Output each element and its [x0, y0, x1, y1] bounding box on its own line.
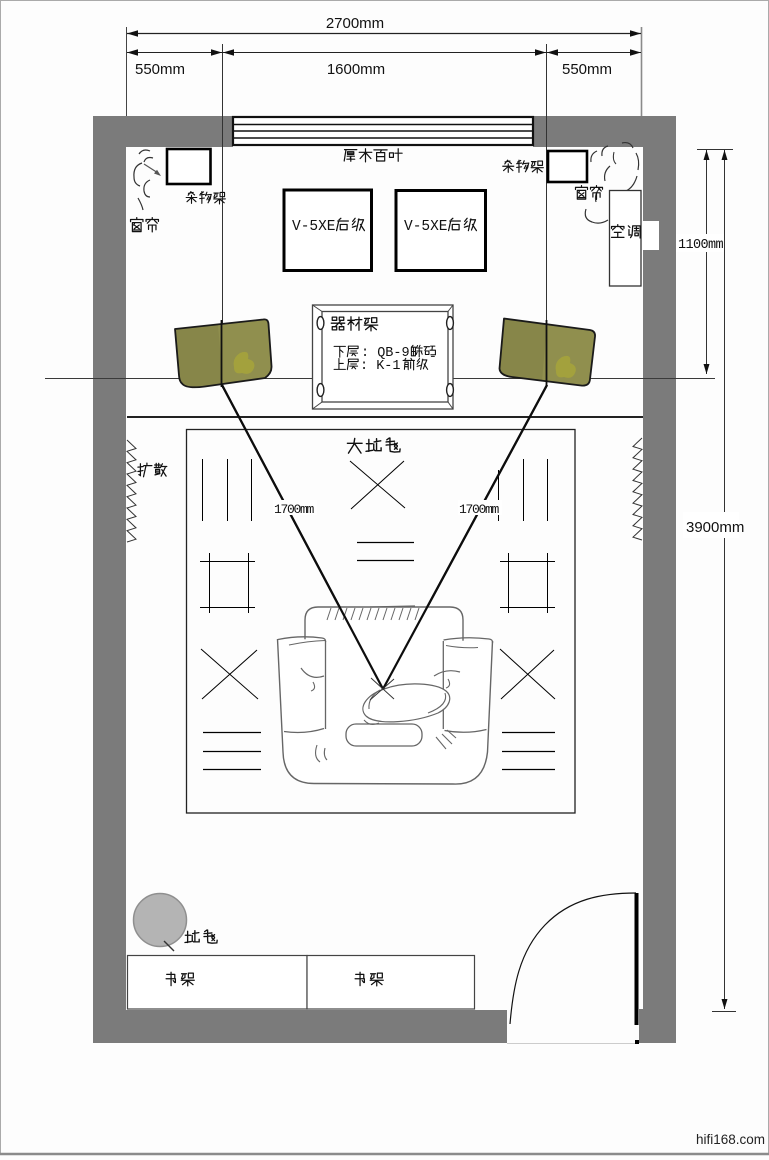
- svg-text:V-5XE: V-5XE: [292, 219, 336, 235]
- svg-text:3900mm: 3900mm: [686, 519, 744, 536]
- svg-text:: K-1: : K-1: [360, 359, 401, 374]
- svg-text:V-5XE: V-5XE: [404, 219, 448, 235]
- svg-text:550mm: 550mm: [135, 61, 185, 78]
- svg-text:1700mm: 1700mm: [274, 502, 315, 517]
- svg-text:1100mm: 1100mm: [678, 238, 724, 253]
- svg-text:1700mm: 1700mm: [459, 502, 500, 517]
- svg-text:hifi168.com: hifi168.com: [696, 1132, 765, 1147]
- svg-text:1600mm: 1600mm: [327, 61, 385, 78]
- svg-text:550mm: 550mm: [562, 61, 612, 78]
- svg-text:2700mm: 2700mm: [326, 15, 384, 32]
